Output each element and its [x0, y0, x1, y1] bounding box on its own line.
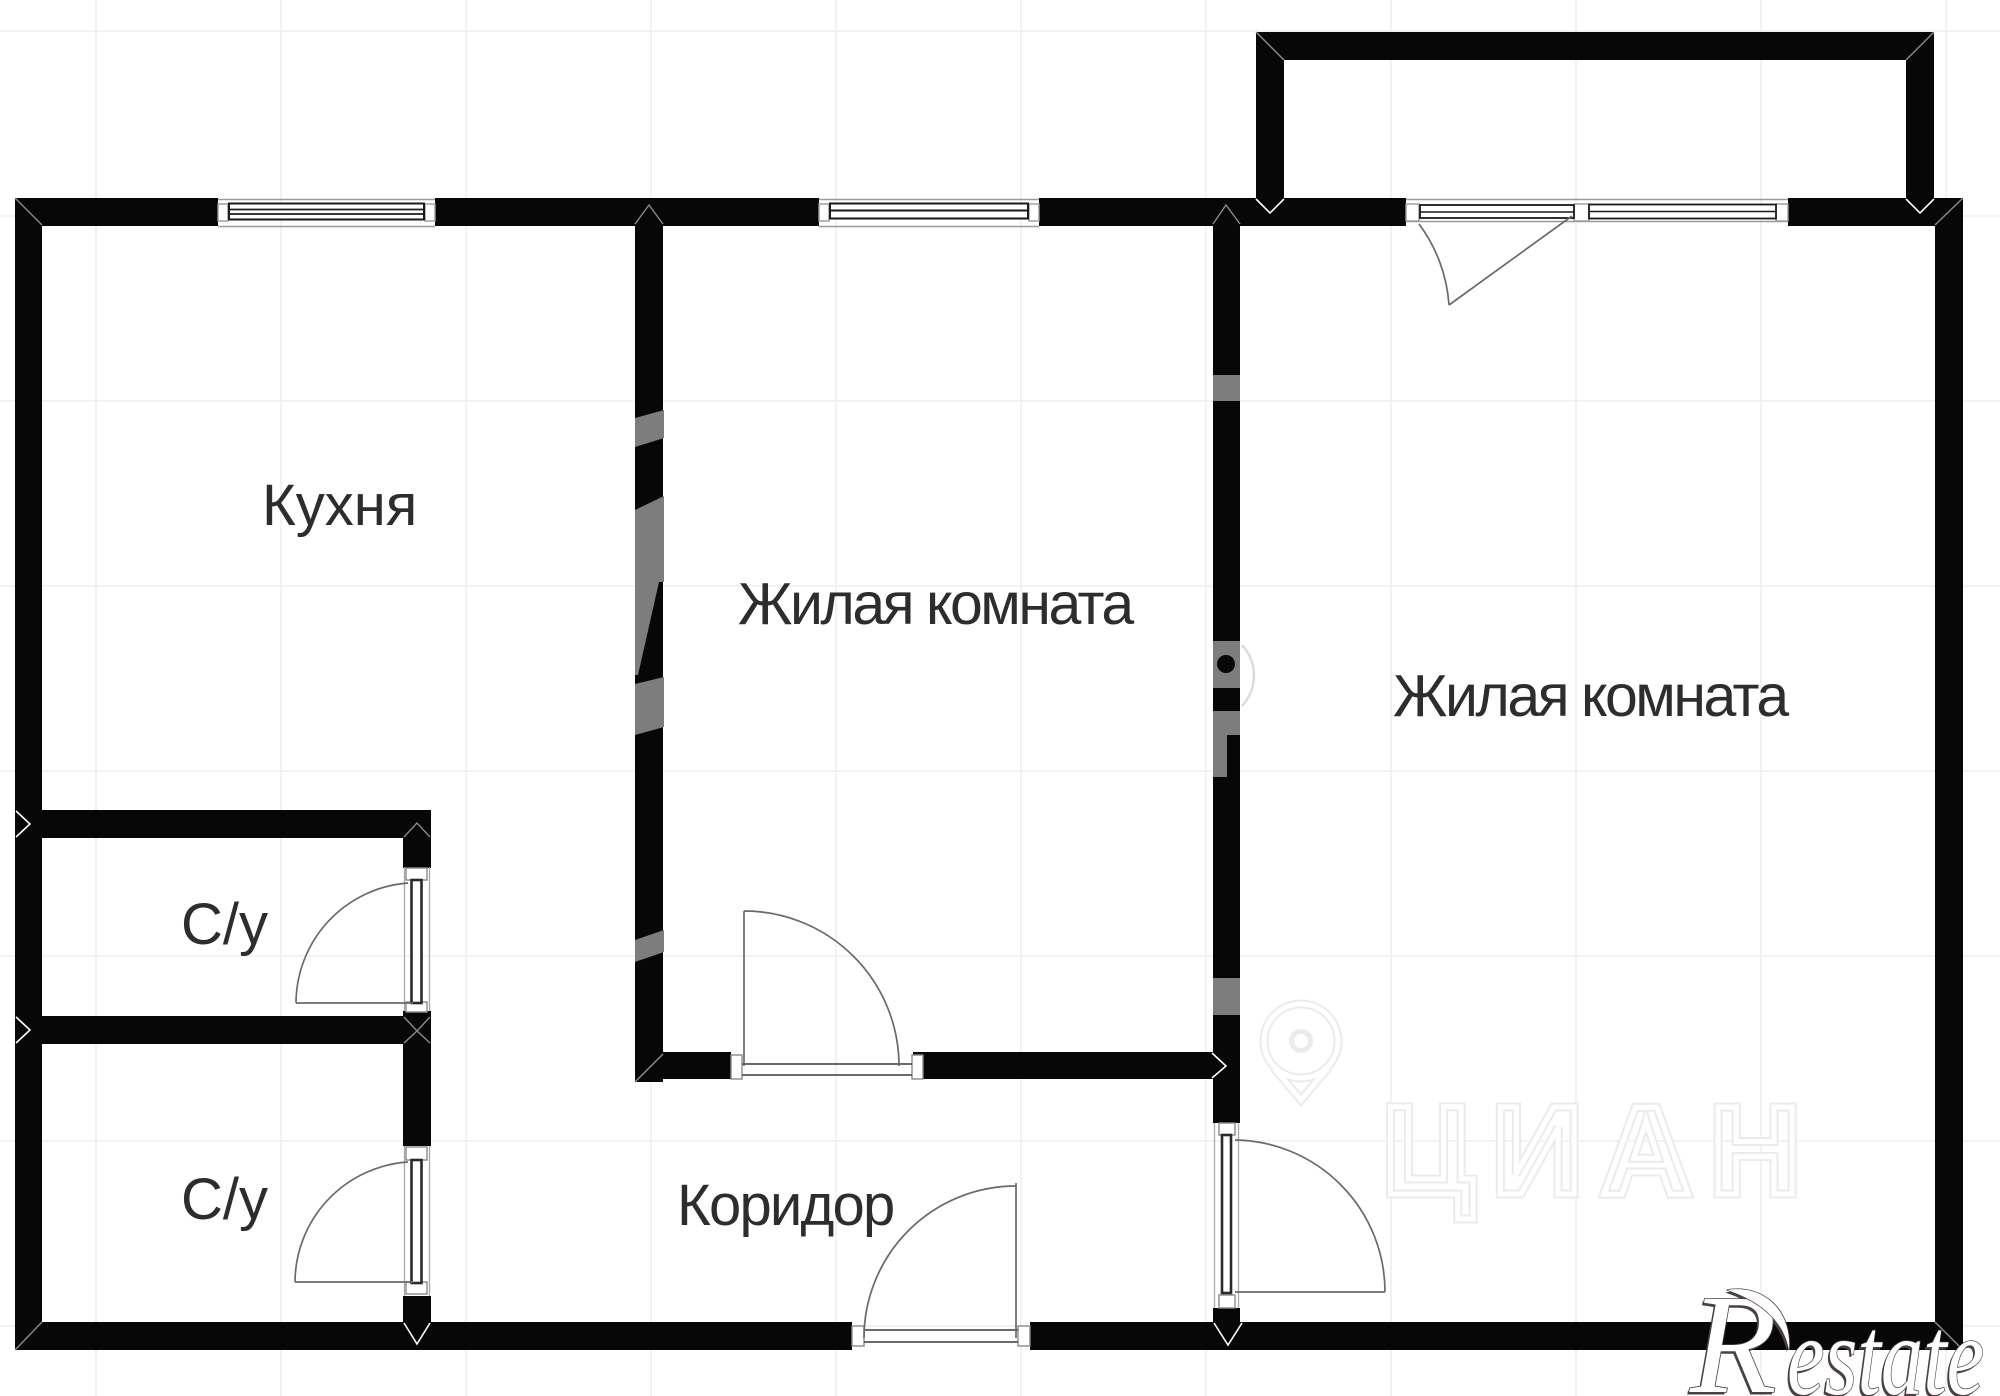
svg-text:Жилая комната: Жилая комната — [1393, 663, 1789, 729]
svg-text:ЦИАН: ЦИАН — [1382, 1080, 1819, 1221]
svg-text:С/у: С/у — [181, 1167, 268, 1232]
svg-text:estate: estate — [1787, 1296, 1984, 1396]
svg-text:R: R — [1689, 1265, 1777, 1396]
svg-text:Кухня: Кухня — [262, 473, 417, 538]
svg-text:Коридор: Коридор — [677, 1173, 893, 1238]
svg-text:С/у: С/у — [181, 892, 268, 957]
svg-text:Жилая комната: Жилая комната — [738, 571, 1134, 637]
